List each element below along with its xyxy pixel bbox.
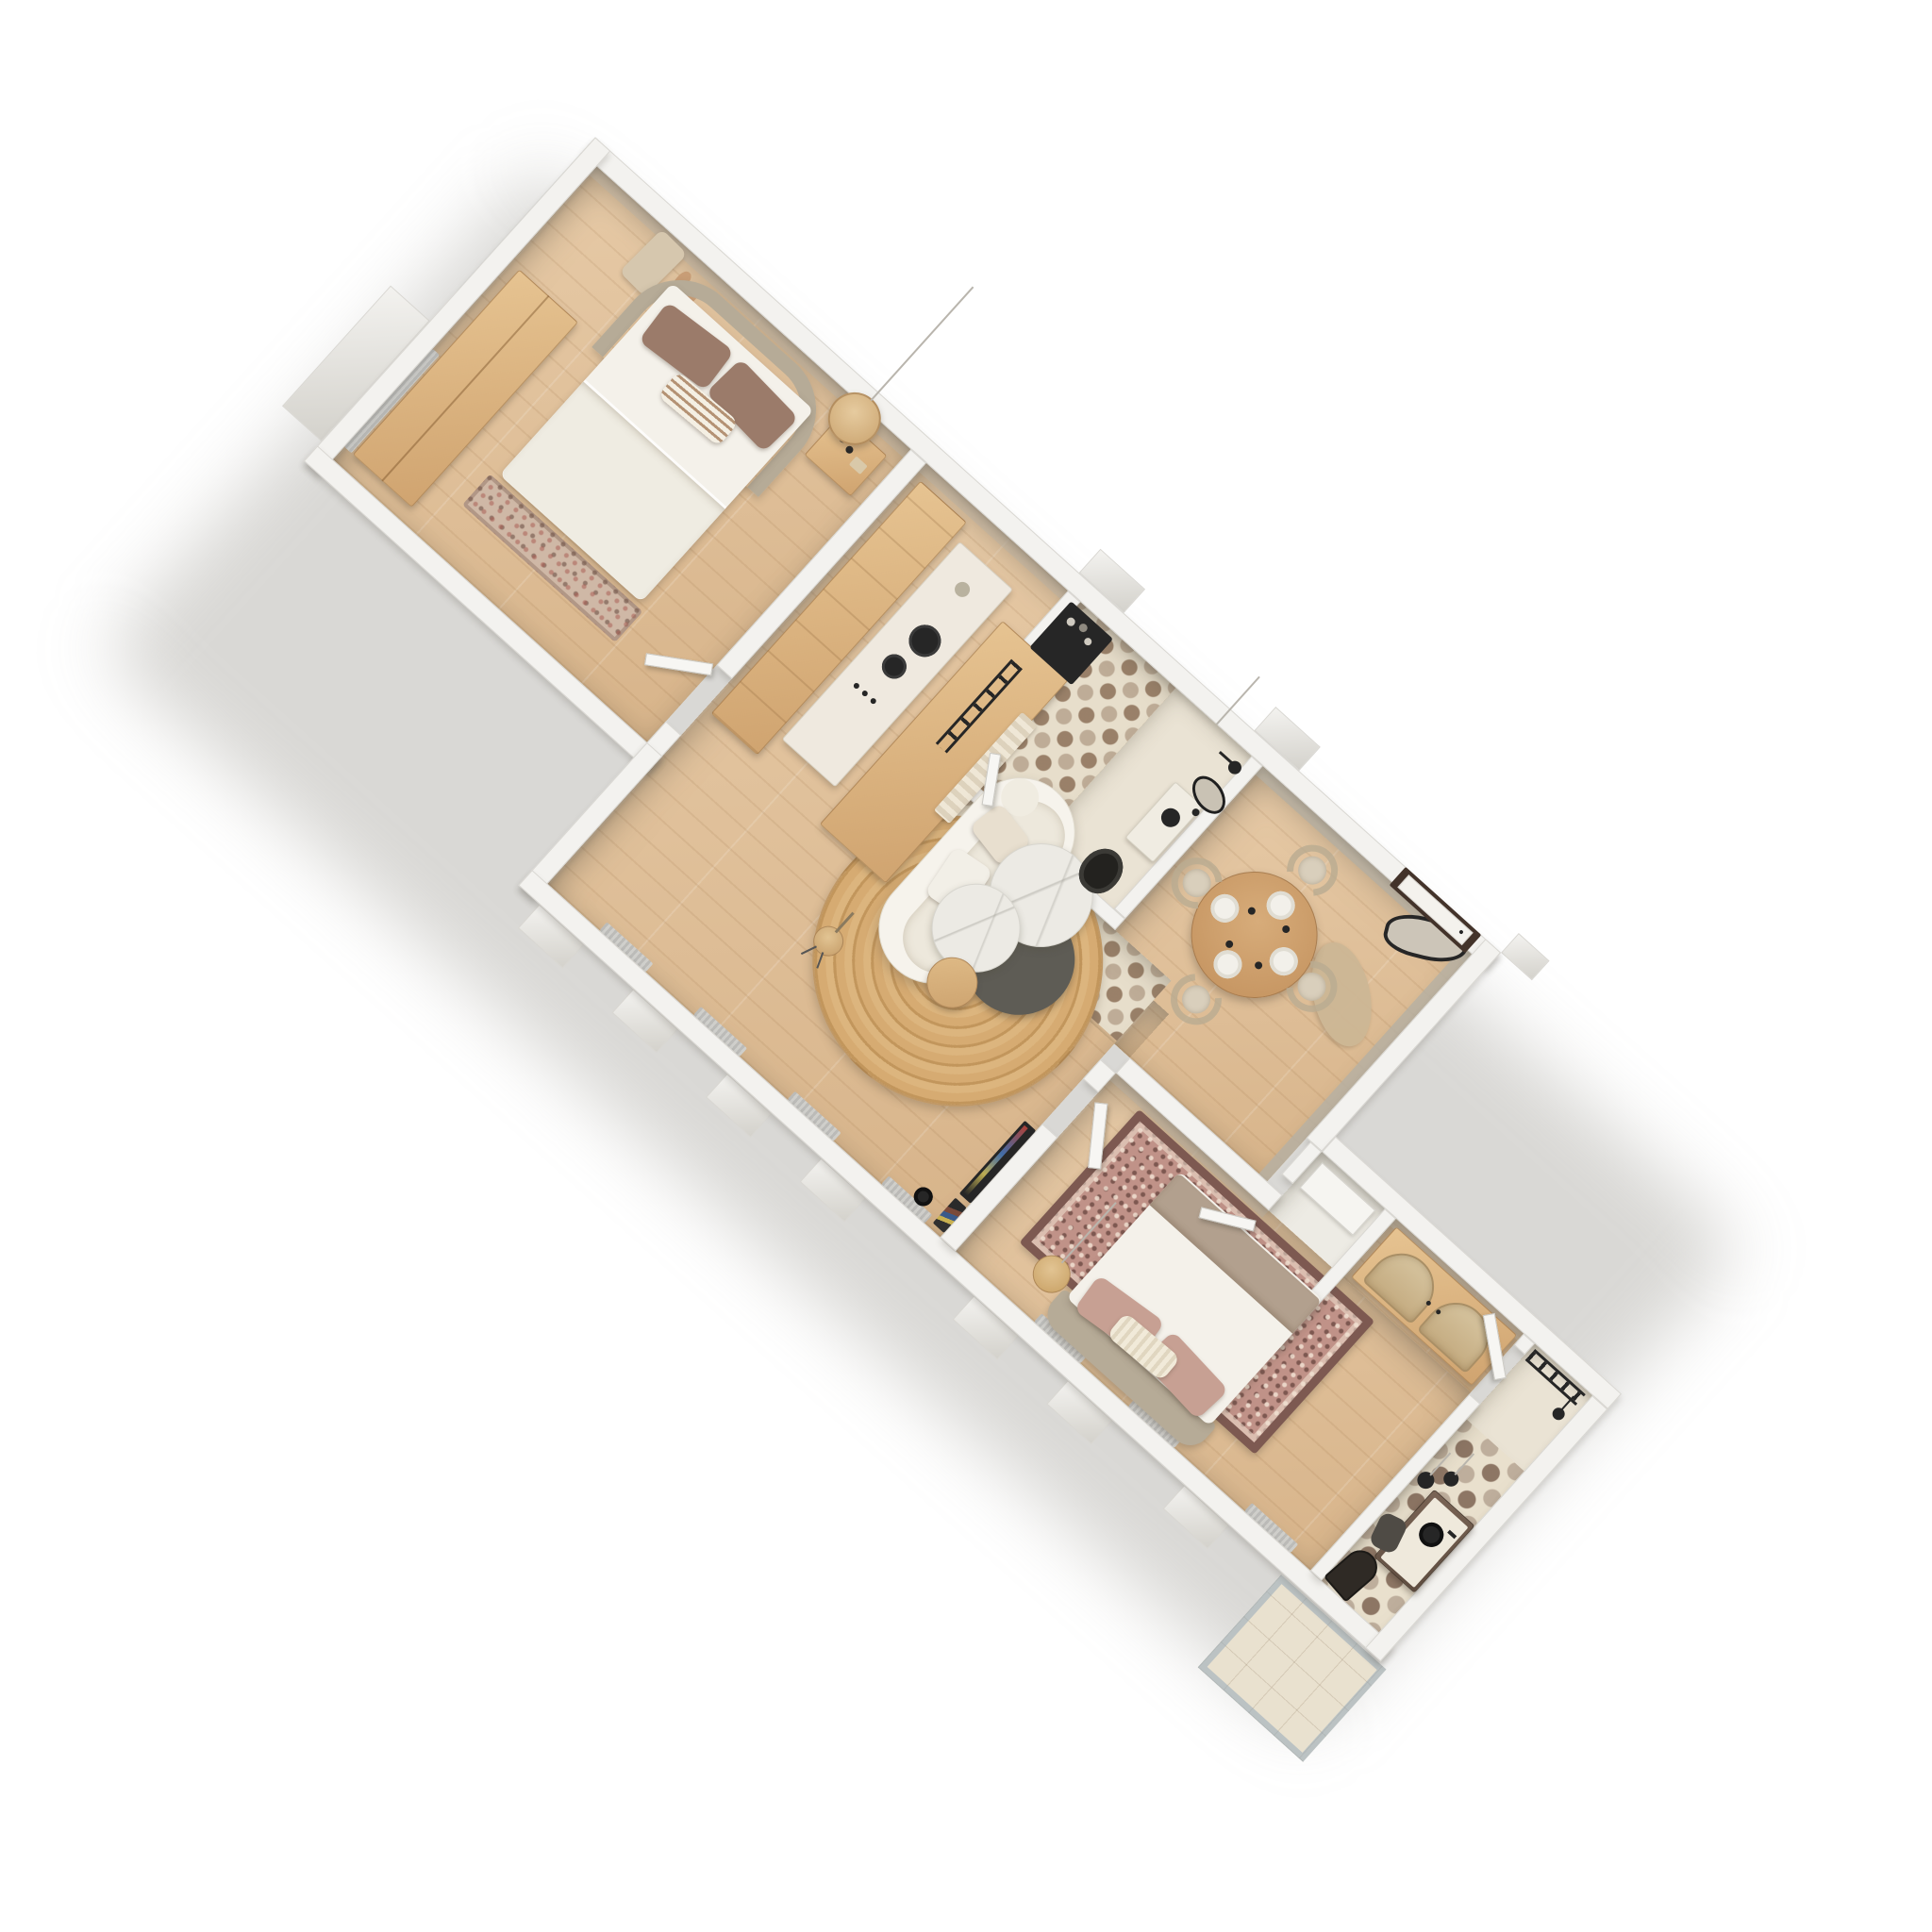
toiletry-bottle (1083, 637, 1093, 647)
floor-plan-canvas (0, 0, 1932, 1932)
chair-seat (1176, 979, 1216, 1019)
window-pier (1501, 933, 1549, 980)
toiletry-bottle (1077, 622, 1090, 634)
chair-seat (1176, 863, 1216, 903)
pendant-wire (870, 287, 974, 402)
chair-seat (1292, 850, 1332, 890)
toiletry-bottle (1065, 616, 1077, 628)
chair-seat (1291, 967, 1331, 1007)
